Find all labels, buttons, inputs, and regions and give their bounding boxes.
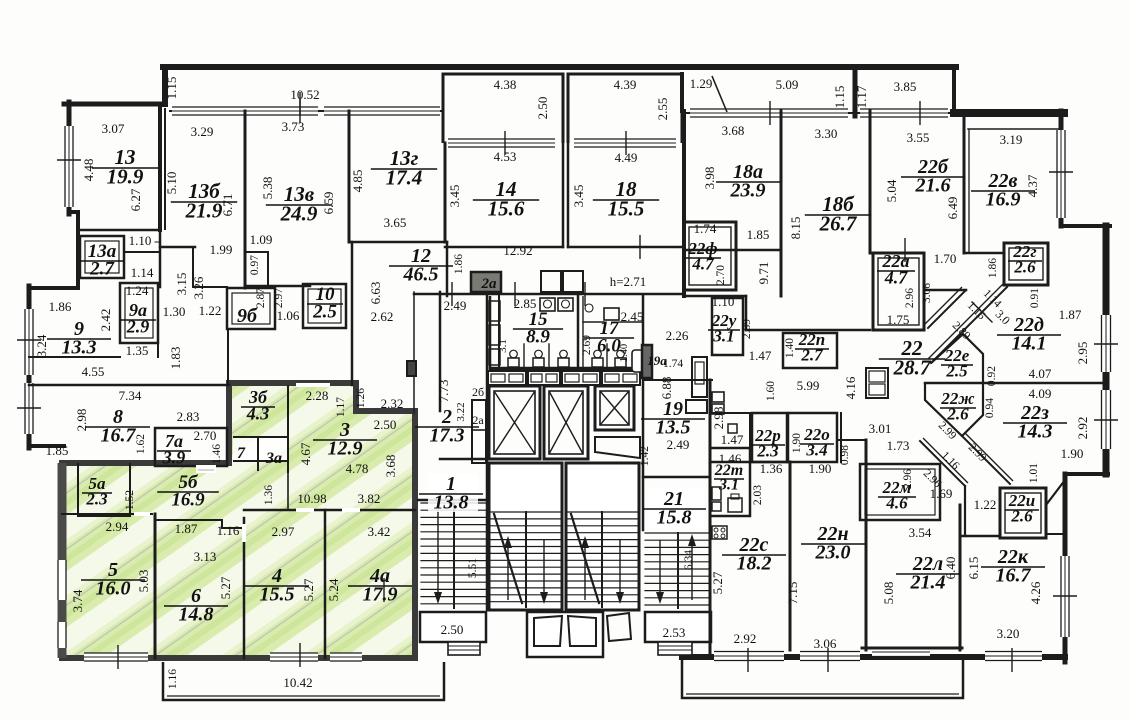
svg-text:3.26: 3.26 [191,276,206,299]
svg-text:1.29: 1.29 [690,76,713,91]
svg-text:2.92: 2.92 [734,631,757,646]
svg-text:23.0: 23.0 [815,541,851,563]
svg-text:1.15: 1.15 [164,77,179,100]
svg-text:2.42: 2.42 [98,309,113,332]
svg-text:1.83: 1.83 [168,347,183,370]
svg-text:14.1: 14.1 [1012,332,1047,354]
svg-text:2.6: 2.6 [946,405,969,424]
svg-text:2.6: 2.6 [1013,258,1036,277]
svg-text:3.42: 3.42 [368,524,391,539]
svg-text:3.06: 3.06 [814,636,837,651]
svg-text:1.14: 1.14 [131,265,154,280]
svg-text:5.24: 5.24 [326,578,341,601]
svg-text:1.47: 1.47 [749,348,772,363]
svg-text:14.8: 14.8 [179,603,214,625]
svg-text:24.9: 24.9 [280,201,318,225]
svg-text:5.99: 5.99 [797,378,820,393]
svg-text:13.8: 13.8 [434,491,469,513]
svg-text:7.15: 7.15 [785,582,800,605]
svg-text:4.07: 4.07 [1029,366,1052,381]
svg-text:5.38: 5.38 [260,177,275,200]
svg-text:17.9: 17.9 [363,583,398,605]
svg-text:1.09: 1.09 [250,232,273,247]
svg-text:1.30: 1.30 [163,304,186,319]
svg-text:3.74: 3.74 [70,589,85,612]
svg-text:1.35: 1.35 [126,343,149,358]
svg-text:4.67: 4.67 [298,442,313,465]
svg-text:23.9: 23.9 [730,179,766,201]
svg-text:3.06: 3.06 [921,283,933,303]
svg-text:7: 7 [237,445,246,462]
svg-text:2.98: 2.98 [74,409,89,432]
svg-text:4.26: 4.26 [1028,581,1043,604]
svg-text:2.70: 2.70 [715,265,727,285]
svg-text:16.9: 16.9 [986,188,1021,210]
svg-text:1.90: 1.90 [1061,446,1084,461]
svg-text:3.1: 3.1 [712,327,734,346]
svg-text:1.46: 1.46 [719,451,742,466]
svg-text:6.71: 6.71 [220,194,235,217]
svg-text:2.50: 2.50 [374,417,397,432]
svg-text:1.86: 1.86 [49,299,72,314]
svg-text:5.03: 5.03 [136,570,151,593]
svg-text:1.52: 1.52 [124,490,136,510]
svg-text:1.06: 1.06 [277,308,300,323]
svg-text:16.7: 16.7 [996,564,1032,586]
svg-text:3.30: 3.30 [815,126,838,141]
svg-text:2.26: 2.26 [666,328,689,343]
svg-text:1.42: 1.42 [639,446,651,466]
svg-text:1.46: 1.46 [211,444,223,464]
svg-text:5.27: 5.27 [301,578,316,601]
svg-text:3.29: 3.29 [191,124,214,139]
svg-text:1.22: 1.22 [199,303,222,318]
svg-text:4.85: 4.85 [350,170,365,193]
svg-text:5.08: 5.08 [881,582,896,605]
svg-text:2.92: 2.92 [1075,417,1090,440]
svg-text:13.3: 13.3 [62,336,97,358]
svg-text:5.04: 5.04 [884,179,899,202]
svg-text:2.49: 2.49 [667,437,690,452]
svg-text:1.86: 1.86 [453,254,465,274]
svg-text:1.74: 1.74 [694,221,717,236]
svg-text:4.7: 4.7 [691,255,715,274]
svg-text:1.40: 1.40 [619,344,630,362]
svg-text:5.51: 5.51 [467,558,479,578]
svg-text:1.85: 1.85 [747,227,770,242]
svg-text:1.15: 1.15 [832,86,847,109]
svg-text:3.68: 3.68 [722,123,745,138]
svg-text:7.34: 7.34 [119,388,142,403]
svg-text:2б: 2б [472,385,484,399]
svg-text:3.1: 3.1 [718,477,739,494]
svg-text:15.6: 15.6 [488,196,525,220]
svg-text:2.83: 2.83 [177,409,200,424]
svg-text:16.7: 16.7 [101,424,137,446]
svg-text:1.40: 1.40 [784,338,796,358]
svg-text:17.4: 17.4 [386,165,423,189]
svg-text:0.94: 0.94 [984,398,996,418]
svg-text:1.01: 1.01 [1028,463,1040,483]
svg-text:6.40: 6.40 [943,557,958,580]
svg-text:3.65: 3.65 [384,215,407,230]
svg-text:3.4: 3.4 [805,441,827,460]
svg-text:5.27: 5.27 [218,576,233,599]
svg-text:1.60: 1.60 [765,381,777,401]
svg-text:2.32: 2.32 [381,396,404,411]
svg-text:1.17: 1.17 [854,85,869,108]
svg-text:2.62: 2.62 [371,309,394,324]
svg-text:2.89: 2.89 [741,319,753,339]
svg-text:7.73: 7.73 [436,380,451,403]
svg-text:21.4: 21.4 [910,571,946,593]
svg-text:3.45: 3.45 [447,185,462,208]
svg-text:2.03: 2.03 [752,485,764,505]
svg-text:1.47: 1.47 [721,432,744,447]
svg-text:1.16: 1.16 [167,669,179,689]
svg-text:4.37: 4.37 [1025,174,1040,197]
svg-text:46.5: 46.5 [403,263,439,285]
svg-text:3.55: 3.55 [907,130,930,145]
svg-text:15.5: 15.5 [608,196,645,220]
svg-text:3.45: 3.45 [571,185,586,208]
svg-text:1.70: 1.70 [934,251,957,266]
svg-text:5.10: 5.10 [164,172,179,195]
svg-text:2.9: 2.9 [126,317,150,337]
svg-text:4.78: 4.78 [346,461,369,476]
svg-text:2.69: 2.69 [581,335,593,355]
svg-text:6.34: 6.34 [683,550,695,570]
svg-text:1.86: 1.86 [987,258,999,278]
svg-text:21.6: 21.6 [915,174,951,196]
svg-text:2.45: 2.45 [621,309,644,324]
svg-text:13.5: 13.5 [656,416,691,438]
svg-text:1.10: 1.10 [712,294,735,309]
svg-text:19.9: 19.9 [107,164,144,188]
svg-text:6.15: 6.15 [966,557,981,580]
svg-text:4.38: 4.38 [494,77,517,92]
svg-text:2.97: 2.97 [272,524,295,539]
svg-text:17.3: 17.3 [430,424,465,446]
svg-text:4.39: 4.39 [614,77,637,92]
svg-text:26.7: 26.7 [819,211,858,235]
svg-text:1.85: 1.85 [46,443,69,458]
svg-text:4.48: 4.48 [81,159,96,182]
svg-text:14.3: 14.3 [1018,420,1053,442]
svg-text:1.90: 1.90 [809,461,832,476]
svg-text:1.36: 1.36 [263,485,275,505]
svg-text:4.16: 4.16 [843,376,858,399]
svg-text:3.54: 3.54 [909,525,932,540]
svg-text:2.28: 2.28 [306,388,329,403]
svg-text:3.82: 3.82 [358,491,381,506]
svg-text:2.85: 2.85 [514,296,537,311]
svg-text:1.24: 1.24 [126,283,149,298]
svg-text:10.98: 10.98 [297,491,326,506]
svg-text:2.3: 2.3 [756,442,779,461]
svg-text:2.55: 2.55 [655,98,670,121]
svg-text:1.36: 1.36 [760,461,783,476]
svg-text:2.7: 2.7 [89,258,115,279]
svg-text:0.98: 0.98 [839,445,851,465]
svg-text:1.26: 1.26 [355,388,367,408]
svg-text:2.96: 2.96 [904,288,916,308]
svg-text:0.91: 0.91 [1029,288,1041,308]
svg-text:3.73: 3.73 [282,119,305,134]
svg-text:2.96: 2.96 [902,469,914,489]
svg-text:3.98: 3.98 [702,167,717,190]
svg-text:18.2: 18.2 [737,552,772,574]
svg-text:5.09: 5.09 [776,77,799,92]
svg-text:16.0: 16.0 [96,577,131,599]
svg-text:1.73: 1.73 [887,438,910,453]
svg-text:3.9: 3.9 [162,448,186,468]
svg-text:1.90: 1.90 [791,433,803,453]
svg-text:1.87: 1.87 [1059,307,1082,322]
svg-text:4.3: 4.3 [246,404,270,424]
svg-text:2.87: 2.87 [255,288,267,308]
svg-text:6.63: 6.63 [368,282,383,305]
svg-text:1.16: 1.16 [217,523,240,538]
svg-text:3.13: 3.13 [194,549,217,564]
svg-text:3.19: 3.19 [1000,132,1023,147]
svg-text:12.9: 12.9 [328,437,363,459]
svg-text:0.92: 0.92 [986,366,998,386]
svg-text:21.9: 21.9 [185,198,223,222]
svg-text:1.87: 1.87 [175,521,198,536]
svg-text:8.15: 8.15 [788,217,803,240]
svg-text:1.99: 1.99 [210,242,233,257]
svg-text:4.09: 4.09 [1029,386,1052,401]
svg-text:3.68: 3.68 [383,455,398,478]
svg-text:3.1: 3.1 [497,339,509,353]
svg-text:2.94: 2.94 [106,519,129,534]
svg-text:2.49: 2.49 [444,298,467,313]
svg-text:2.53: 2.53 [663,625,686,640]
svg-text:6.59: 6.59 [321,192,336,215]
svg-text:8.9: 8.9 [526,326,550,347]
svg-text:2.70: 2.70 [194,428,217,443]
svg-text:2.5: 2.5 [312,301,337,322]
svg-text:2.95: 2.95 [1075,342,1090,365]
svg-text:1.75: 1.75 [887,312,910,327]
svg-text:3.07: 3.07 [102,121,125,136]
svg-text:4.7: 4.7 [884,268,909,288]
svg-text:2.3: 2.3 [85,490,108,509]
svg-text:2.50: 2.50 [441,622,464,637]
svg-text:2.7: 2.7 [800,346,824,365]
svg-text:2.50: 2.50 [535,97,550,120]
svg-text:3.20: 3.20 [997,626,1020,641]
svg-text:6.27: 6.27 [128,188,143,211]
svg-text:3а: 3а [265,450,282,467]
svg-text:6.88: 6.88 [659,377,674,400]
svg-text:h=2.71: h=2.71 [610,274,647,289]
svg-text:6.49: 6.49 [945,197,960,220]
svg-text:12.92: 12.92 [503,243,532,258]
svg-text:1.69: 1.69 [930,486,953,501]
svg-text:2а: 2а [472,413,484,427]
svg-text:2.6: 2.6 [1010,507,1033,526]
svg-text:16.9: 16.9 [171,489,205,510]
svg-text:1.62: 1.62 [135,434,147,454]
svg-text:3.15: 3.15 [174,273,189,296]
svg-text:2.97: 2.97 [273,288,285,308]
svg-text:10.42: 10.42 [283,675,312,690]
svg-text:2.98: 2.98 [711,407,726,430]
svg-text:1.74: 1.74 [663,358,683,370]
svg-text:3.22: 3.22 [455,402,467,421]
svg-text:10.52: 10.52 [290,87,319,102]
svg-text:1.10: 1.10 [129,233,152,248]
svg-text:3.85: 3.85 [894,79,917,94]
svg-text:9.71: 9.71 [756,262,771,285]
svg-text:28.7: 28.7 [893,355,932,379]
svg-text:4.6: 4.6 [885,494,908,513]
svg-text:3.24: 3.24 [34,334,49,357]
svg-text:1.17: 1.17 [335,397,347,417]
svg-text:2.5: 2.5 [945,362,968,381]
svg-text:1.22: 1.22 [974,497,997,512]
svg-text:15.5: 15.5 [260,583,295,605]
svg-text:5.27: 5.27 [710,571,725,594]
svg-text:0.97: 0.97 [249,255,261,275]
svg-text:6.0: 6.0 [597,335,621,356]
svg-text:2а: 2а [481,276,498,292]
svg-text:3.01: 3.01 [869,421,892,436]
svg-text:4.55: 4.55 [82,364,105,379]
svg-text:15.8: 15.8 [657,506,692,528]
